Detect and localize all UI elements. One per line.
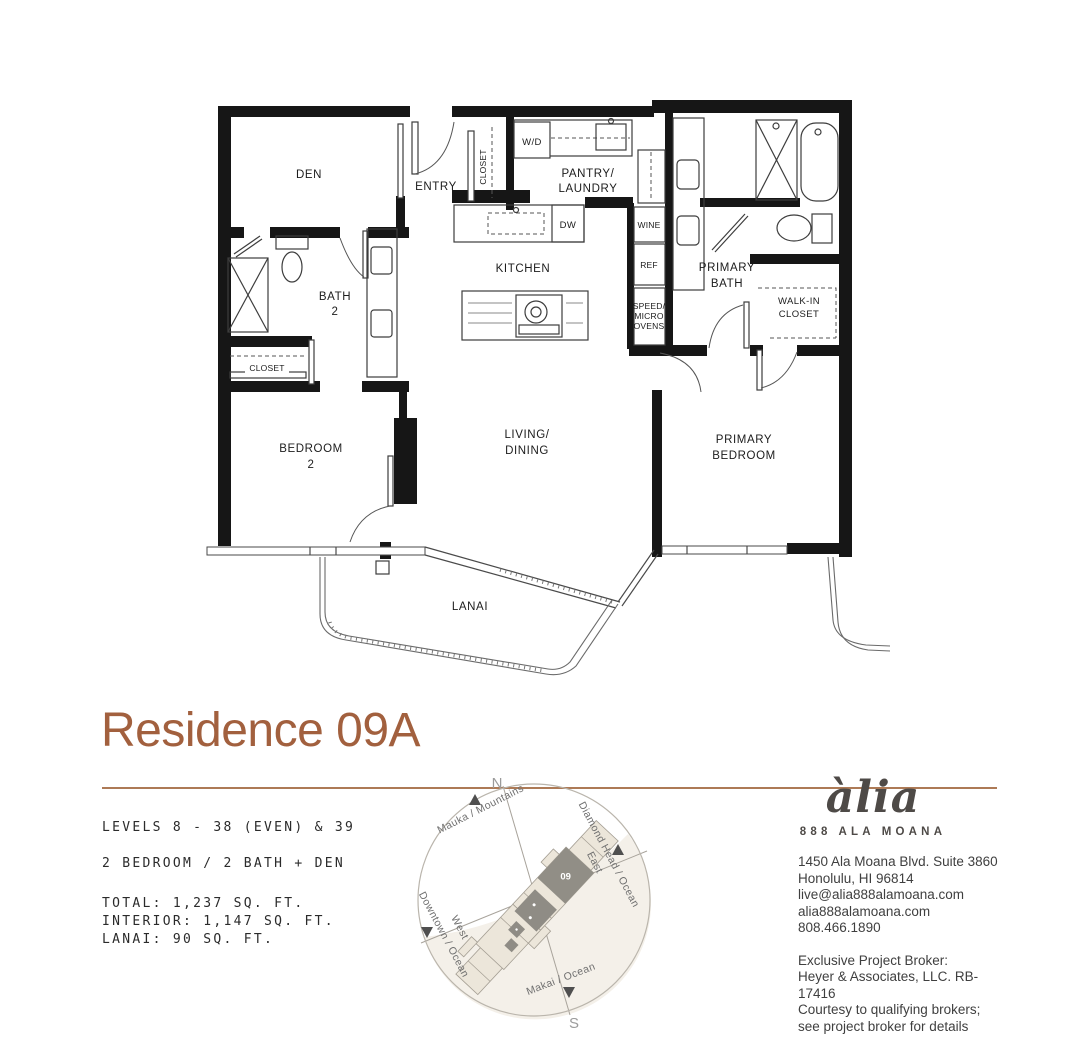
broker-line-3: Courtesy to qualifying brokers; [798,1002,998,1019]
windows [207,546,787,608]
unit-09-label: 09 [560,871,571,882]
label-bath2-1: BATH [319,291,351,303]
lanai-railing [320,557,890,675]
residence-specs: LEVELS 8 - 38 (EVEN) & 39 2 BEDROOM / 2 … [102,820,355,949]
label-lanai: LANAI [452,601,488,613]
label-bedroom2-1: BEDROOM [279,443,343,455]
floorplan-sheet: DEN ENTRY CLOSET W/D PANTRY/ LAUNDRY KIT… [0,0,1080,1050]
label-primary-bedroom-1: PRIMARY [716,434,772,446]
brand-subtitle: 888 ALA MOANA [798,826,948,838]
label-pantry-1: PANTRY/ [562,168,615,180]
label-entry: ENTRY [415,181,457,193]
primary-toilet-bowl [777,215,811,241]
label-wine: WINE [638,220,661,230]
contact-phone: 808.466.1890 [798,920,998,937]
spec-total: TOTAL: 1,237 SQ. FT. [102,895,355,913]
alia-logo: àlia [798,774,948,822]
floorplan-drawing: DEN ENTRY CLOSET W/D PANTRY/ LAUNDRY KIT… [0,0,1080,700]
label-primary-bedroom-2: BEDROOM [712,450,776,462]
broker-info: Exclusive Project Broker: Heyer & Associ… [798,953,998,1036]
compass-mauka: Mauka / Mountains [435,782,526,836]
label-pantry-2: LAUNDRY [559,183,618,195]
compass-south: S [569,1015,579,1032]
toilet-2-bowl [282,252,302,282]
label-bath2-2: 2 [332,306,339,318]
label-bath2-closet: CLOSET [249,363,284,373]
label-den: DEN [296,169,322,181]
label-ref: REF [640,260,658,270]
broker-line-1: Exclusive Project Broker: [798,953,998,970]
primary-toilet-tank [812,214,832,243]
keyplan-compass: 09 N S Mauka / Mountains Diamond Head / … [400,772,668,1034]
contact-info: 1450 Ala Moana Blvd. Suite 3860 Honolulu… [798,854,998,937]
sink [371,247,392,274]
sink [677,216,699,245]
label-primary-bath-1: PRIMARY [699,262,755,274]
page-title: Residence 09A [101,703,420,758]
spec-levels: LEVELS 8 - 38 (EVEN) & 39 [102,820,355,835]
label-ovens-1: SPEED/ [633,301,666,311]
spec-layout: 2 BEDROOM / 2 BATH + DEN [102,856,355,871]
room-labels: DEN ENTRY CLOSET W/D PANTRY/ LAUNDRY KIT… [245,137,820,613]
spec-lanai: LANAI: 90 SQ. FT. [102,931,355,949]
contact-email: live@alia888alamoana.com [798,887,998,904]
label-primary-bath-2: BATH [711,278,743,290]
label-ovens-2: MICRO [634,311,664,321]
label-living-2: DINING [505,445,549,457]
address-line-2: Honolulu, HI 96814 [798,871,998,888]
label-walkin-2: CLOSET [779,309,819,320]
label-walkin-1: WALK-IN [778,296,820,307]
broker-line-4: see project broker for details [798,1019,998,1036]
label-entry-closet: CLOSET [478,149,488,184]
compass-north: N [492,775,503,792]
label-ovens-3: OVENS [634,321,665,331]
spec-interior: INTERIOR: 1,147 SQ. FT. [102,913,355,931]
laundry-sink [596,124,626,150]
sink [371,310,392,337]
label-kitchen: KITCHEN [496,263,551,275]
label-wd: W/D [522,137,542,148]
brand-block: àlia 888 ALA MOANA 1450 Ala Moana Blvd. … [798,774,998,1035]
kitchen-sink [488,213,544,234]
sink [677,160,699,189]
label-dw: DW [560,220,577,231]
label-living-1: LIVING/ [504,429,549,441]
address-line-1: 1450 Ala Moana Blvd. Suite 3860 [798,854,998,871]
broker-line-2: Heyer & Associates, LLC. RB-17416 [798,969,998,1002]
label-bedroom2-2: 2 [308,459,315,471]
contact-website: alia888alamoana.com [798,904,998,921]
